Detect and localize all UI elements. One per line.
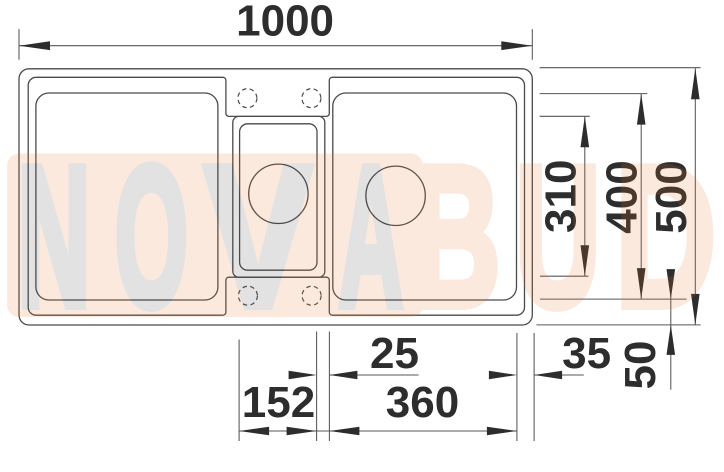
svg-text:N: N (17, 126, 90, 349)
svg-text:152: 152 (242, 378, 315, 427)
svg-text:1000: 1000 (236, 0, 334, 46)
svg-text:A: A (339, 126, 404, 349)
svg-text:B: B (411, 126, 501, 349)
svg-text:D: D (615, 126, 716, 349)
svg-text:O: O (115, 126, 188, 349)
svg-text:V: V (205, 126, 311, 349)
svg-text:360: 360 (386, 378, 459, 427)
svg-text:U: U (515, 126, 600, 349)
